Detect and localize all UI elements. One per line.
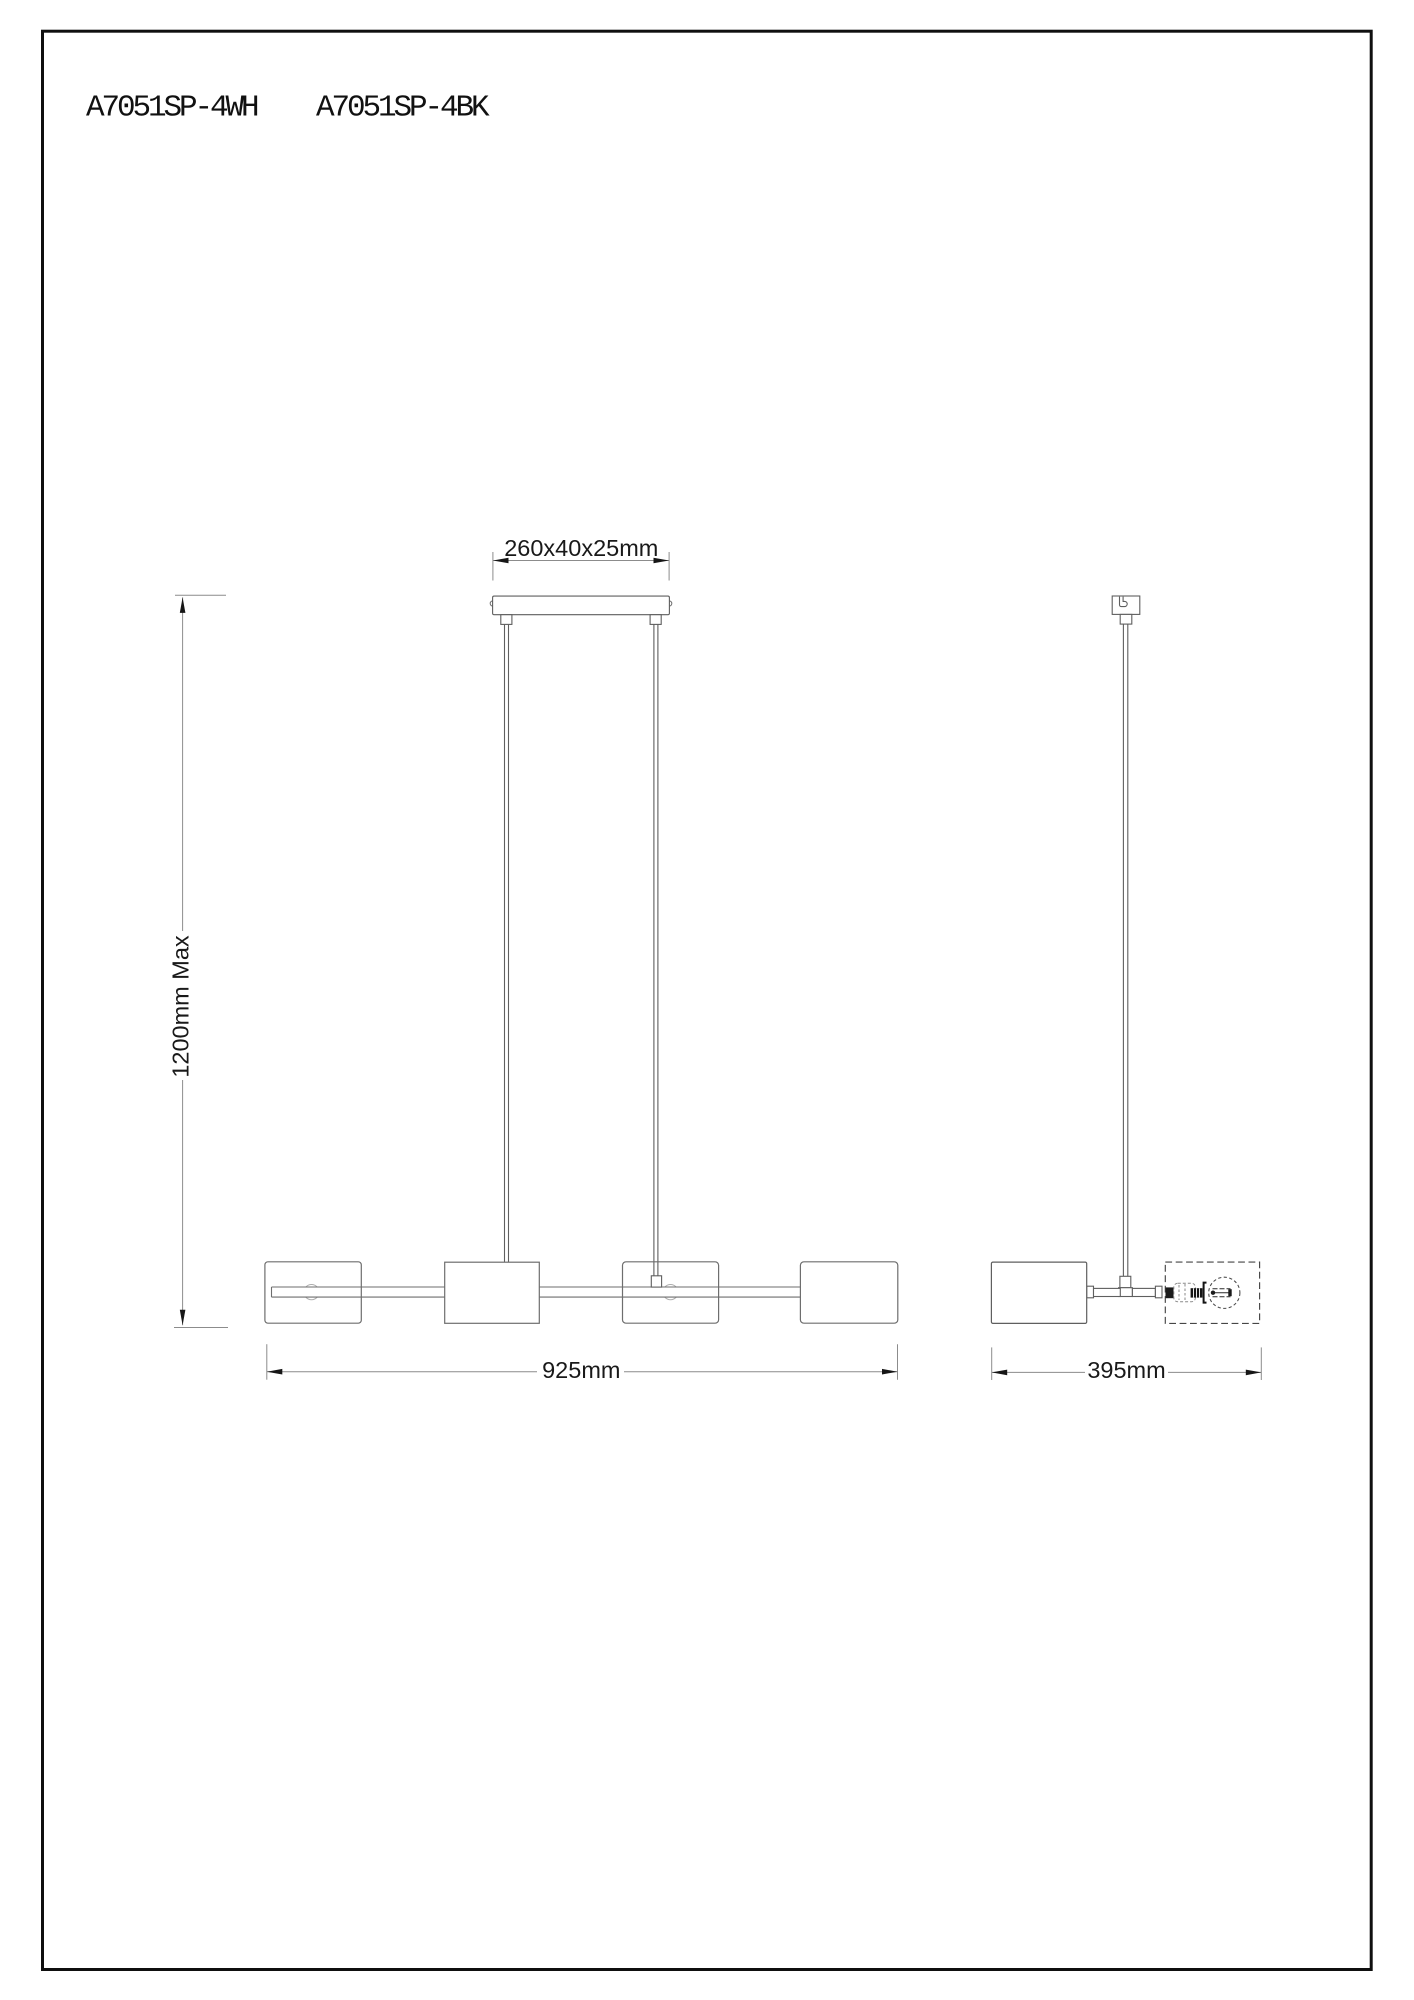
svg-text:925mm: 925mm [542,1357,620,1383]
svg-text:A7051SP-4BK: A7051SP-4BK [316,91,490,126]
svg-text:395mm: 395mm [1087,1357,1165,1383]
svg-text:260x40x25mm: 260x40x25mm [504,535,658,561]
svg-text:A7051SP-4WH: A7051SP-4WH [86,91,258,126]
svg-text:1200mm Max: 1200mm Max [168,935,194,1078]
